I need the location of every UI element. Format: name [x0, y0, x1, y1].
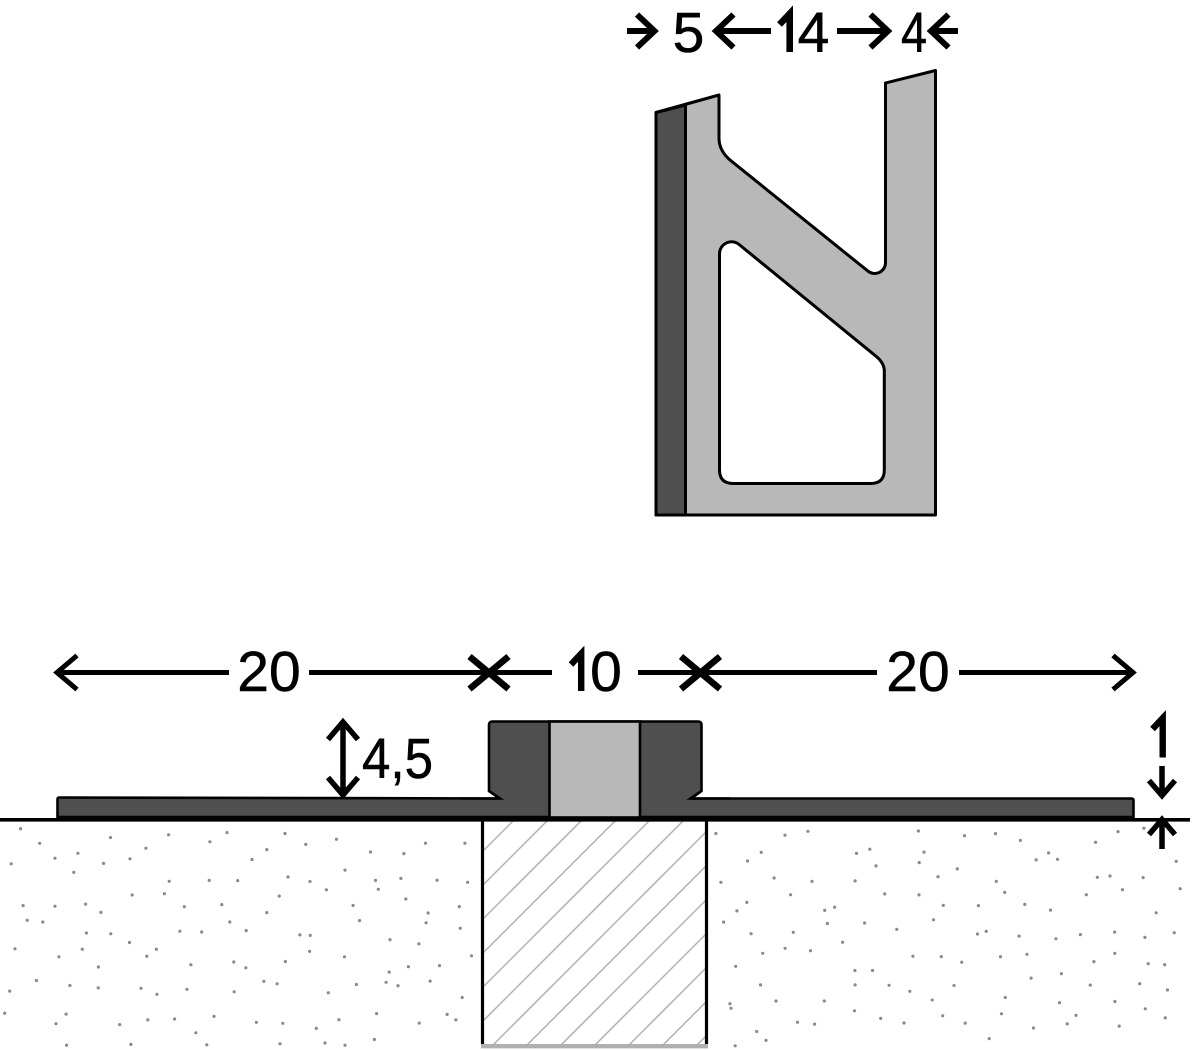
svg-text:20: 20 [237, 640, 300, 704]
svg-text:0: 0 [590, 640, 622, 704]
svg-text:20: 20 [886, 640, 949, 704]
svg-text:5: 5 [673, 1, 705, 65]
svg-text:4: 4 [901, 1, 927, 65]
svg-text:4: 4 [798, 1, 830, 65]
svg-text:4,5: 4,5 [362, 727, 433, 791]
